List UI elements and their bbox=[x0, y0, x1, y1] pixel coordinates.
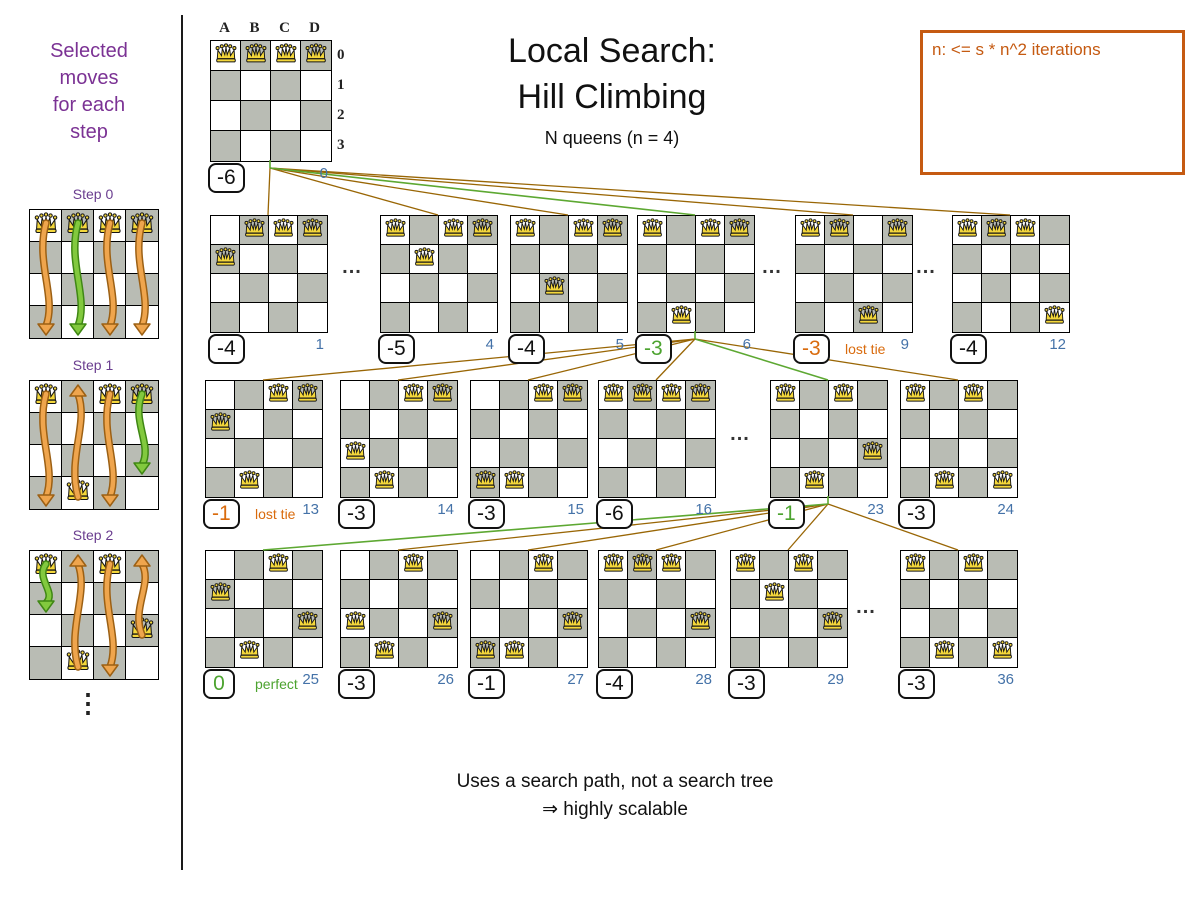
board-cell bbox=[293, 551, 322, 580]
board-cell bbox=[599, 410, 628, 439]
board-cell bbox=[789, 609, 818, 638]
board-cell bbox=[829, 439, 858, 468]
board-cell bbox=[471, 381, 500, 410]
queen-icon bbox=[572, 218, 595, 241]
board-cell bbox=[126, 306, 158, 338]
board-cell bbox=[511, 245, 540, 274]
queen-icon bbox=[1014, 218, 1037, 241]
queen-icon bbox=[904, 553, 927, 576]
queen-icon bbox=[503, 640, 526, 663]
board-cell bbox=[760, 609, 789, 638]
board-cell bbox=[1040, 216, 1069, 245]
ellipsis: ... bbox=[330, 256, 374, 279]
board-cell bbox=[206, 638, 235, 667]
slide: Selected moves for each step ⋮ Local Sea… bbox=[0, 0, 1200, 900]
board-b29 bbox=[730, 550, 848, 668]
board-cell bbox=[796, 245, 825, 274]
board-cell bbox=[696, 274, 725, 303]
board-cell bbox=[500, 410, 529, 439]
board-cell bbox=[511, 303, 540, 332]
board-cell bbox=[471, 439, 500, 468]
board-cell bbox=[628, 410, 657, 439]
board-cell bbox=[269, 303, 298, 332]
board-cell bbox=[686, 580, 715, 609]
board-b16 bbox=[598, 380, 716, 498]
board-cell bbox=[1040, 245, 1069, 274]
queen-icon bbox=[33, 212, 59, 238]
board-cell bbox=[500, 580, 529, 609]
queen-icon bbox=[602, 553, 625, 576]
board-cell bbox=[235, 439, 264, 468]
queen-icon bbox=[601, 218, 624, 241]
queen-icon bbox=[402, 383, 425, 406]
board-cell bbox=[599, 609, 628, 638]
board-cell bbox=[638, 245, 667, 274]
subtitle: N queens (n = 4) bbox=[402, 128, 822, 149]
board-cell bbox=[240, 274, 269, 303]
board-b1 bbox=[210, 215, 328, 333]
queen-icon bbox=[267, 383, 290, 406]
board-b15 bbox=[470, 380, 588, 498]
board-cell bbox=[381, 274, 410, 303]
queen-icon bbox=[431, 383, 454, 406]
lost-tie-label: lost tie bbox=[255, 506, 295, 522]
queen-icon bbox=[763, 582, 786, 605]
queen-icon bbox=[129, 383, 155, 409]
board-cell bbox=[211, 131, 241, 161]
board-cell bbox=[381, 303, 410, 332]
score-badge-b13: -1 bbox=[203, 499, 240, 529]
board-cell bbox=[529, 439, 558, 468]
board-cell bbox=[696, 245, 725, 274]
board-cell bbox=[796, 274, 825, 303]
queen-icon bbox=[402, 553, 425, 576]
board-cell bbox=[370, 439, 399, 468]
board-cell bbox=[686, 439, 715, 468]
board-cell bbox=[94, 477, 126, 509]
board-cell bbox=[94, 445, 126, 477]
board-cell bbox=[988, 551, 1017, 580]
sidebar-title-line: moves bbox=[8, 65, 170, 92]
queen-icon bbox=[274, 43, 298, 67]
queen-icon bbox=[503, 470, 526, 493]
row-label: 1 bbox=[337, 70, 345, 100]
board-cell bbox=[558, 580, 587, 609]
board-cell bbox=[30, 477, 62, 509]
board-cell bbox=[558, 551, 587, 580]
board-cell bbox=[399, 468, 428, 497]
queen-icon bbox=[962, 553, 985, 576]
queen-icon bbox=[442, 218, 465, 241]
board-cell bbox=[818, 638, 847, 667]
board-b6 bbox=[637, 215, 755, 333]
board-cell bbox=[657, 468, 686, 497]
board-cell bbox=[62, 615, 94, 647]
board-cell bbox=[341, 580, 370, 609]
board-cell bbox=[667, 245, 696, 274]
board-cell bbox=[30, 413, 62, 445]
board-cell bbox=[598, 245, 627, 274]
board-cell bbox=[94, 413, 126, 445]
footer-line-1: Uses a search path, not a search tree bbox=[280, 768, 950, 796]
row-label: 3 bbox=[337, 130, 345, 160]
board-cell bbox=[959, 580, 988, 609]
board-cell bbox=[731, 638, 760, 667]
score-badge-b16: -6 bbox=[596, 499, 633, 529]
board-cell bbox=[468, 245, 497, 274]
board-cell bbox=[771, 410, 800, 439]
board-cell bbox=[930, 580, 959, 609]
board-cell bbox=[341, 410, 370, 439]
queen-icon bbox=[699, 218, 722, 241]
board-cell bbox=[657, 439, 686, 468]
board-cell bbox=[800, 381, 829, 410]
board-cell bbox=[264, 468, 293, 497]
board-cell bbox=[410, 216, 439, 245]
score-badge-b25: 0 bbox=[203, 669, 235, 699]
page-title: Local Search: Hill Climbing N queens (n … bbox=[402, 28, 822, 149]
board-cell bbox=[235, 381, 264, 410]
board-b23 bbox=[770, 380, 888, 498]
ellipsis: ... bbox=[844, 596, 888, 619]
queen-icon bbox=[238, 470, 261, 493]
board-b0 bbox=[210, 40, 332, 162]
board-cell bbox=[854, 274, 883, 303]
queen-icon bbox=[803, 470, 826, 493]
queen-icon bbox=[660, 383, 683, 406]
queen-icon bbox=[774, 383, 797, 406]
queen-icon bbox=[689, 611, 712, 634]
board-cell bbox=[569, 245, 598, 274]
board-cell bbox=[959, 439, 988, 468]
queen-icon bbox=[532, 553, 555, 576]
board-cell bbox=[271, 71, 301, 101]
board-b27 bbox=[470, 550, 588, 668]
board-cell bbox=[240, 245, 269, 274]
board-b13 bbox=[205, 380, 323, 498]
board-cell bbox=[30, 242, 62, 274]
board-cell bbox=[500, 609, 529, 638]
board-cell bbox=[930, 439, 959, 468]
board-cell bbox=[381, 245, 410, 274]
board-cell bbox=[370, 551, 399, 580]
board-cell bbox=[271, 101, 301, 131]
queen-icon bbox=[243, 218, 266, 241]
board-cell bbox=[988, 609, 1017, 638]
board-cell bbox=[858, 410, 887, 439]
board-cell bbox=[241, 101, 271, 131]
board-cell bbox=[558, 410, 587, 439]
board-cell bbox=[206, 381, 235, 410]
board-b9 bbox=[795, 215, 913, 333]
score-badge-b6: -3 bbox=[635, 334, 672, 364]
board-cell bbox=[959, 609, 988, 638]
board-cell bbox=[30, 306, 62, 338]
queen-icon bbox=[238, 640, 261, 663]
board-cell bbox=[126, 242, 158, 274]
queen-icon bbox=[514, 218, 537, 241]
board-cell bbox=[370, 381, 399, 410]
board-cell bbox=[686, 551, 715, 580]
board-cell bbox=[301, 71, 331, 101]
board-cell bbox=[883, 303, 912, 332]
footer-text: Uses a search path, not a search tree ⇒ … bbox=[280, 768, 950, 824]
board-cell bbox=[959, 638, 988, 667]
queen-icon bbox=[97, 553, 123, 579]
board-cell bbox=[569, 303, 598, 332]
queen-icon bbox=[857, 305, 880, 328]
board-cell bbox=[529, 580, 558, 609]
board-cell bbox=[959, 410, 988, 439]
board-b24 bbox=[900, 380, 1018, 498]
column-label: D bbox=[300, 20, 330, 37]
board-cell bbox=[428, 551, 457, 580]
queen-icon bbox=[344, 611, 367, 634]
board-cell bbox=[241, 131, 271, 161]
title-line-1: Local Search: bbox=[402, 28, 822, 74]
board-cell bbox=[94, 242, 126, 274]
score-badge-b9: -3 bbox=[793, 334, 830, 364]
board-cell bbox=[264, 609, 293, 638]
board-cell bbox=[62, 445, 94, 477]
queen-icon bbox=[97, 212, 123, 238]
board-cell bbox=[293, 439, 322, 468]
board-cell bbox=[341, 551, 370, 580]
board-cell bbox=[370, 609, 399, 638]
board-cell bbox=[800, 410, 829, 439]
queen-icon bbox=[129, 617, 155, 643]
queen-icon bbox=[129, 212, 155, 238]
board-cell bbox=[62, 413, 94, 445]
board-cell bbox=[628, 609, 657, 638]
queen-icon bbox=[561, 611, 584, 634]
board-cell bbox=[953, 245, 982, 274]
score-badge-b36: -3 bbox=[898, 669, 935, 699]
queen-icon bbox=[474, 640, 497, 663]
queen-icon bbox=[828, 218, 851, 241]
score-badge-b28: -4 bbox=[596, 669, 633, 699]
board-b25 bbox=[205, 550, 323, 668]
board-cell bbox=[558, 468, 587, 497]
board-cell bbox=[760, 551, 789, 580]
board-cell bbox=[829, 410, 858, 439]
board-cell bbox=[930, 381, 959, 410]
queen-icon bbox=[267, 553, 290, 576]
board-cell bbox=[529, 468, 558, 497]
queen-icon bbox=[728, 218, 751, 241]
board-cell bbox=[638, 303, 667, 332]
board-cell bbox=[529, 638, 558, 667]
score-badge-b23: -1 bbox=[768, 499, 805, 529]
board-b5 bbox=[510, 215, 628, 333]
sidebar-title: Selected moves for each step bbox=[8, 38, 170, 146]
queen-icon bbox=[821, 611, 844, 634]
divider-line bbox=[181, 15, 183, 870]
board-cell bbox=[399, 638, 428, 667]
queen-icon bbox=[886, 218, 909, 241]
board-cell bbox=[628, 638, 657, 667]
queen-icon bbox=[209, 412, 232, 435]
board-cell bbox=[771, 468, 800, 497]
queen-icon bbox=[602, 383, 625, 406]
board-cell bbox=[301, 101, 331, 131]
queen-icon bbox=[631, 553, 654, 576]
sidebar-title-line: Selected bbox=[8, 38, 170, 65]
board-cell bbox=[235, 410, 264, 439]
queen-icon bbox=[561, 383, 584, 406]
board-cell bbox=[628, 439, 657, 468]
queen-icon bbox=[1043, 305, 1066, 328]
sidebar-title-line: for each bbox=[8, 92, 170, 119]
board-cell bbox=[126, 413, 158, 445]
board-cell bbox=[696, 303, 725, 332]
board-cell bbox=[500, 439, 529, 468]
board-cell bbox=[471, 551, 500, 580]
board-cell bbox=[982, 245, 1011, 274]
board-cell bbox=[599, 580, 628, 609]
board-cell bbox=[126, 274, 158, 306]
board-cell bbox=[540, 303, 569, 332]
board-cell bbox=[771, 439, 800, 468]
board-cell bbox=[428, 410, 457, 439]
board-cell bbox=[62, 551, 94, 583]
board-cell bbox=[269, 274, 298, 303]
board-cell bbox=[818, 580, 847, 609]
board-cell bbox=[854, 216, 883, 245]
board-cell bbox=[298, 274, 327, 303]
board-cell bbox=[468, 303, 497, 332]
queen-icon bbox=[956, 218, 979, 241]
board-cell bbox=[930, 551, 959, 580]
board-cell bbox=[657, 638, 686, 667]
queen-icon bbox=[214, 43, 238, 67]
board-cell bbox=[271, 131, 301, 161]
board-cell bbox=[529, 410, 558, 439]
board-cell bbox=[301, 131, 331, 161]
row-label: 0 bbox=[337, 40, 345, 70]
board-cell bbox=[930, 410, 959, 439]
board-cell bbox=[428, 468, 457, 497]
board-cell bbox=[829, 468, 858, 497]
queen-icon bbox=[991, 470, 1014, 493]
board-cell bbox=[30, 583, 62, 615]
board-cell bbox=[959, 468, 988, 497]
board-cell bbox=[1040, 274, 1069, 303]
queen-icon bbox=[304, 43, 328, 67]
board-cell bbox=[240, 303, 269, 332]
board-cell bbox=[731, 580, 760, 609]
board-cell bbox=[94, 274, 126, 306]
board-cell bbox=[62, 274, 94, 306]
score-badge-b27: -1 bbox=[468, 669, 505, 699]
score-badge-b5: -4 bbox=[508, 334, 545, 364]
board-cell bbox=[94, 615, 126, 647]
board-cell bbox=[211, 274, 240, 303]
queen-icon bbox=[214, 247, 237, 270]
score-badge-b12: -4 bbox=[950, 334, 987, 364]
board-cell bbox=[901, 439, 930, 468]
ellipsis: ... bbox=[904, 256, 948, 279]
board-cell bbox=[731, 609, 760, 638]
board-cell bbox=[818, 551, 847, 580]
board-step0 bbox=[29, 209, 159, 339]
board-cell bbox=[988, 410, 1017, 439]
queen-icon bbox=[65, 479, 91, 505]
score-badge-b1: -4 bbox=[208, 334, 245, 364]
board-cell bbox=[854, 245, 883, 274]
queen-icon bbox=[799, 218, 822, 241]
board-cell bbox=[540, 245, 569, 274]
board-cell bbox=[293, 410, 322, 439]
queen-icon bbox=[861, 441, 884, 464]
board-cell bbox=[126, 551, 158, 583]
board-b28 bbox=[598, 550, 716, 668]
board-cell bbox=[1011, 274, 1040, 303]
board-cell bbox=[901, 580, 930, 609]
board-cell bbox=[298, 245, 327, 274]
score-badge-b24: -3 bbox=[898, 499, 935, 529]
board-cell bbox=[657, 580, 686, 609]
board-cell bbox=[399, 410, 428, 439]
board-cell bbox=[760, 638, 789, 667]
board-cell bbox=[94, 306, 126, 338]
board-cell bbox=[126, 445, 158, 477]
board-cell bbox=[725, 303, 754, 332]
board-cell bbox=[428, 580, 457, 609]
board-cell bbox=[500, 381, 529, 410]
board-cell bbox=[30, 647, 62, 679]
board-cell bbox=[206, 609, 235, 638]
board-cell bbox=[410, 274, 439, 303]
board-cell bbox=[439, 274, 468, 303]
board-cell bbox=[30, 445, 62, 477]
board-cell bbox=[264, 410, 293, 439]
board-cell bbox=[988, 580, 1017, 609]
score-badge-b4: -5 bbox=[378, 334, 415, 364]
board-cell bbox=[988, 381, 1017, 410]
board-cell bbox=[298, 303, 327, 332]
board-cell bbox=[206, 468, 235, 497]
board-cell bbox=[511, 274, 540, 303]
queen-icon bbox=[991, 640, 1014, 663]
board-cell bbox=[667, 216, 696, 245]
queen-icon bbox=[933, 640, 956, 663]
queen-icon bbox=[296, 383, 319, 406]
board-cell bbox=[428, 439, 457, 468]
board-cell bbox=[953, 303, 982, 332]
board-cell bbox=[930, 609, 959, 638]
board-cell bbox=[62, 306, 94, 338]
queen-icon bbox=[904, 383, 927, 406]
queen-icon bbox=[33, 383, 59, 409]
queen-icon bbox=[373, 470, 396, 493]
queen-icon bbox=[641, 218, 664, 241]
board-cell bbox=[858, 381, 887, 410]
board-cell bbox=[471, 580, 500, 609]
queen-icon bbox=[244, 43, 268, 67]
board-cell bbox=[825, 245, 854, 274]
board-cell bbox=[598, 274, 627, 303]
board-cell bbox=[628, 468, 657, 497]
queen-icon bbox=[33, 553, 59, 579]
board-cell bbox=[30, 615, 62, 647]
board-cell bbox=[439, 245, 468, 274]
board-cell bbox=[599, 638, 628, 667]
board-cell bbox=[901, 638, 930, 667]
queen-icon bbox=[296, 611, 319, 634]
board-cell bbox=[686, 638, 715, 667]
column-label: A bbox=[210, 20, 240, 37]
